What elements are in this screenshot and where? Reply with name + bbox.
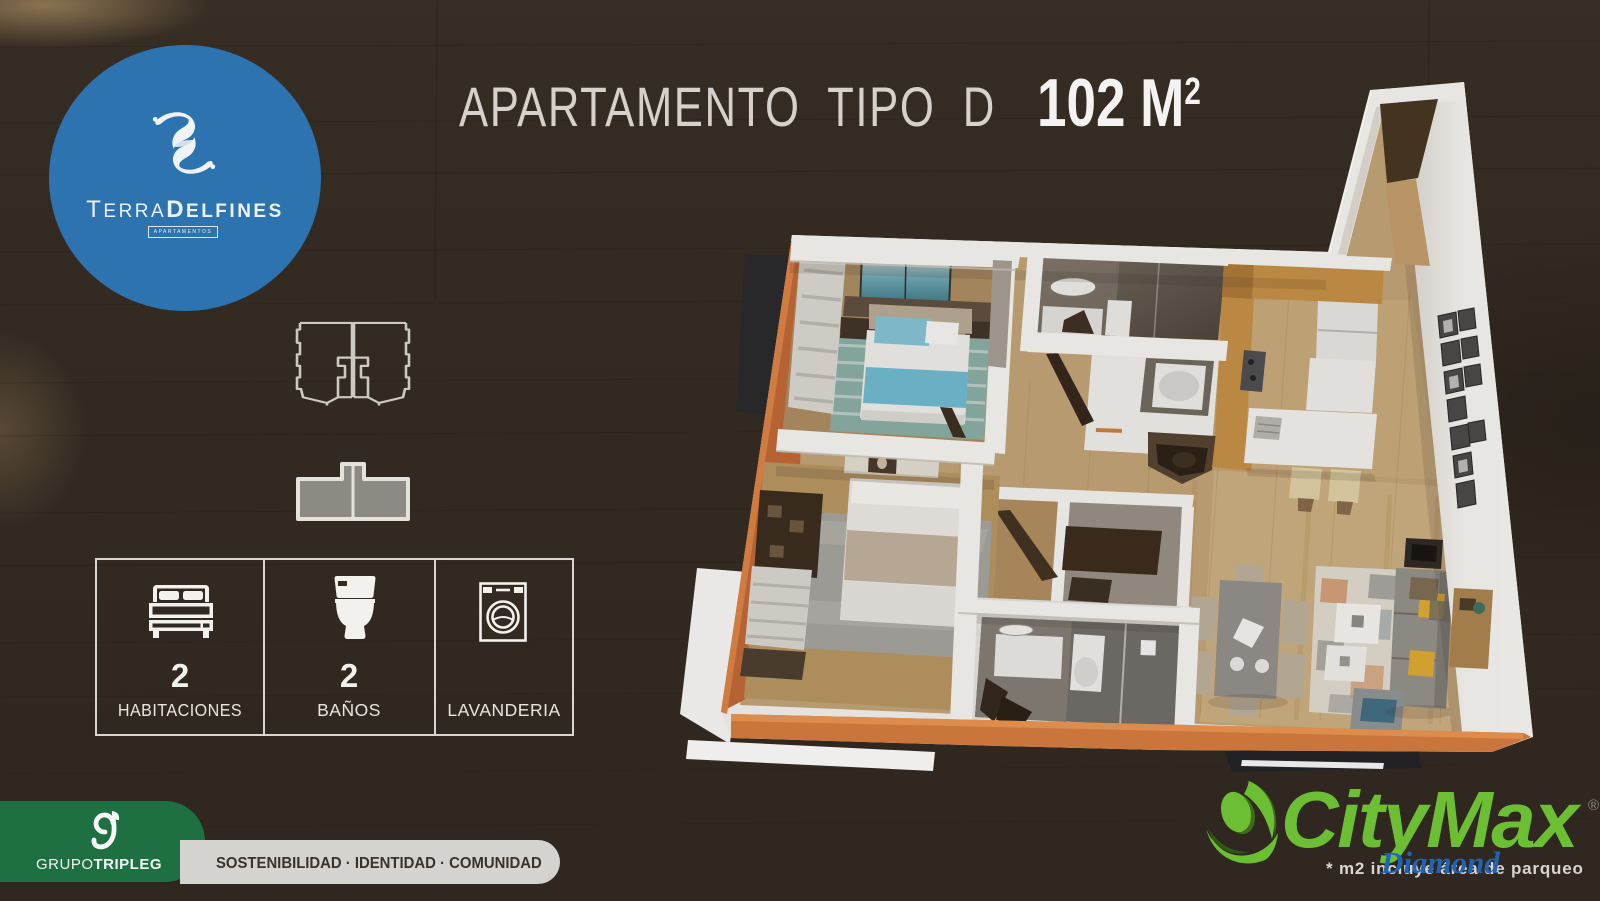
svg-text:®: ® [1588,797,1599,814]
